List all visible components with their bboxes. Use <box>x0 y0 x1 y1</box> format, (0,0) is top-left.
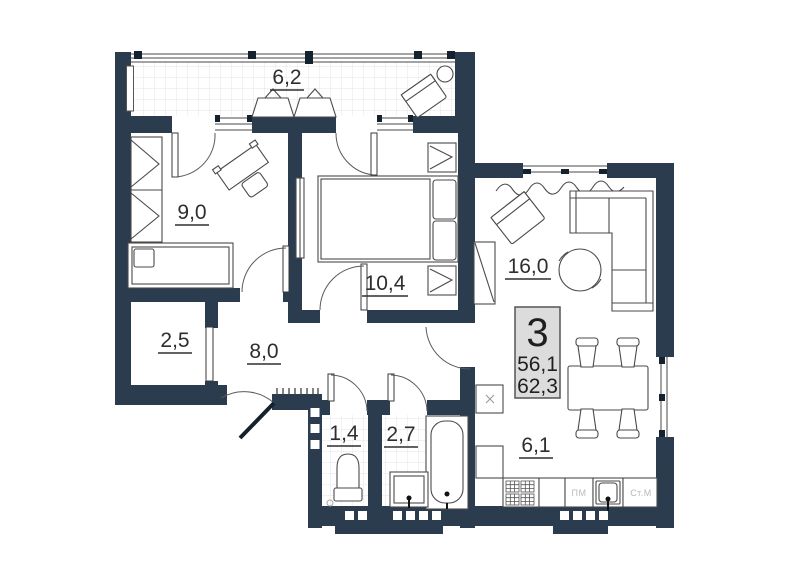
desk-icon <box>213 140 281 207</box>
floor-plan-page: 6,2 9,0 10,4 16,0 2,5 8,0 1,4 2,7 6,1 3 … <box>0 0 800 565</box>
room-area-label-storage: 2,5 <box>160 329 189 352</box>
dishwasher-label: ПМ <box>572 488 587 498</box>
dining-table-icon <box>568 366 648 410</box>
window-bedroom-2 <box>377 115 413 131</box>
room-area-label-bedroom-1: 9,0 <box>177 201 206 224</box>
balcony-door-bedroom-2 <box>336 133 377 175</box>
door-bathroom <box>388 374 427 411</box>
balcony-glazing <box>131 51 455 64</box>
double-bed-icon <box>318 176 458 262</box>
entry-threshold <box>277 388 318 394</box>
room-area-label-bedroom-2: 10,4 <box>365 272 406 295</box>
stamp-living-area: 56,1 <box>517 353 558 376</box>
floor-plan-drawing: 6,2 9,0 10,4 16,0 2,5 8,0 1,4 2,7 6,1 3 … <box>0 0 800 565</box>
single-bed-icon <box>128 243 233 288</box>
living-wardrobe-icon <box>474 242 495 304</box>
room-area-label-hallway: 8,0 <box>249 340 278 363</box>
door-wc <box>328 374 367 411</box>
storage-sliding-door <box>206 327 213 381</box>
door-bedroom-2 <box>320 264 367 310</box>
balcony-side-window <box>127 66 134 111</box>
window-kitchen <box>658 357 671 437</box>
room-area-label-balcony: 6,2 <box>272 66 301 89</box>
room-area-label-wc: 1,4 <box>329 422 359 445</box>
living-armchair-icon <box>491 192 545 245</box>
entrance-door <box>221 392 274 438</box>
room-area-label-living: 16,0 <box>508 255 549 278</box>
door-kitchen <box>426 327 470 369</box>
window-living-room <box>523 164 607 177</box>
apartment-stamp: 3 56,1 62,3 <box>515 307 560 398</box>
stamp-total-area: 62,3 <box>517 375 558 398</box>
balcony-door-bedroom-1 <box>172 133 215 177</box>
radiator-icon <box>296 178 304 258</box>
washbasin-icon <box>390 472 428 508</box>
balcony-table-icon <box>437 66 453 82</box>
room-area-label-kitchen: 6,1 <box>521 434 550 457</box>
coffee-table-icon <box>559 249 601 291</box>
room-area-label-bathroom: 2,7 <box>386 423 415 446</box>
bathtub-icon <box>426 416 468 509</box>
wardrobe-icon <box>131 137 162 242</box>
stamp-room-count: 3 <box>526 311 548 355</box>
door-bedroom-1 <box>242 246 289 292</box>
window-bedroom-1 <box>215 115 252 131</box>
washing-machine-label: Ст.М <box>630 488 652 498</box>
